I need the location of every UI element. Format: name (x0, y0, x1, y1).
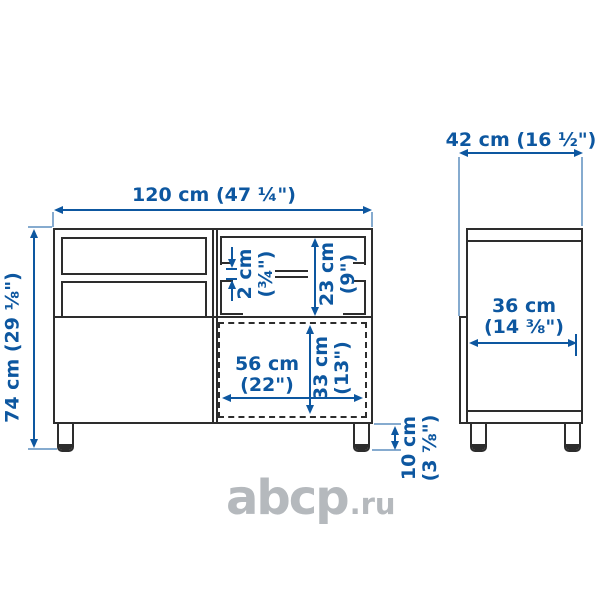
arrowhead (222, 394, 231, 402)
extension-line (374, 423, 401, 425)
watermark-brand: abcp (226, 474, 348, 522)
drawer-front-top (61, 237, 207, 275)
extension-line (371, 212, 373, 227)
extension-line (28, 448, 57, 450)
arrowhead (30, 229, 38, 238)
arrowhead (574, 149, 583, 157)
shelf-edge-bottom (275, 276, 308, 278)
extension-line (458, 157, 460, 316)
shelf-edge-top (275, 270, 308, 272)
shelf-thickness-stem (231, 289, 233, 301)
leg-foot (59, 444, 72, 450)
arrowhead (459, 149, 468, 157)
arrowhead (30, 439, 38, 448)
dimension-diagram: 120 cm (47 ¼") 74 cm (29 ⅛") 2 cm (¾") 2… (0, 0, 600, 600)
extension-line (581, 157, 583, 226)
opening-height-label: 33 cm (13") (311, 268, 353, 468)
side-top-panel-line (468, 240, 581, 242)
front-right-leg (353, 422, 370, 452)
inner-depth-line (478, 342, 568, 344)
arrowhead (469, 339, 478, 347)
extension-line (52, 212, 54, 227)
watermark-suffix: .ru (350, 490, 396, 519)
watermark-logo: abcp .ru (226, 474, 396, 522)
shelf-thickness-label: 2 cm (¾") (235, 174, 277, 374)
arrowhead (354, 394, 363, 402)
leg-foot (355, 444, 368, 450)
side-back-leg (564, 422, 581, 452)
shelf-thickness-stem (231, 247, 233, 259)
drawer-front-bottom (61, 281, 207, 318)
height-dimension-line (33, 238, 35, 439)
side-bottom-panel-line (468, 410, 581, 412)
side-front-leg (470, 422, 487, 452)
inner-depth-tick (575, 334, 577, 356)
front-left-leg (57, 422, 74, 452)
depth-dimension-line (468, 152, 574, 154)
inner-depth-label: 36 cm (14 ⅜") (454, 296, 594, 338)
leg-foot (566, 444, 579, 450)
height-dimension-label: 74 cm (29 ⅛") (3, 248, 24, 448)
leg-height-label: 10 cm (3 ⅞") (399, 348, 441, 548)
depth-dimension-label: 42 cm (16 ½") (431, 130, 600, 151)
arrowhead (54, 206, 63, 214)
extension-line (28, 226, 52, 228)
leg-foot (472, 444, 485, 450)
